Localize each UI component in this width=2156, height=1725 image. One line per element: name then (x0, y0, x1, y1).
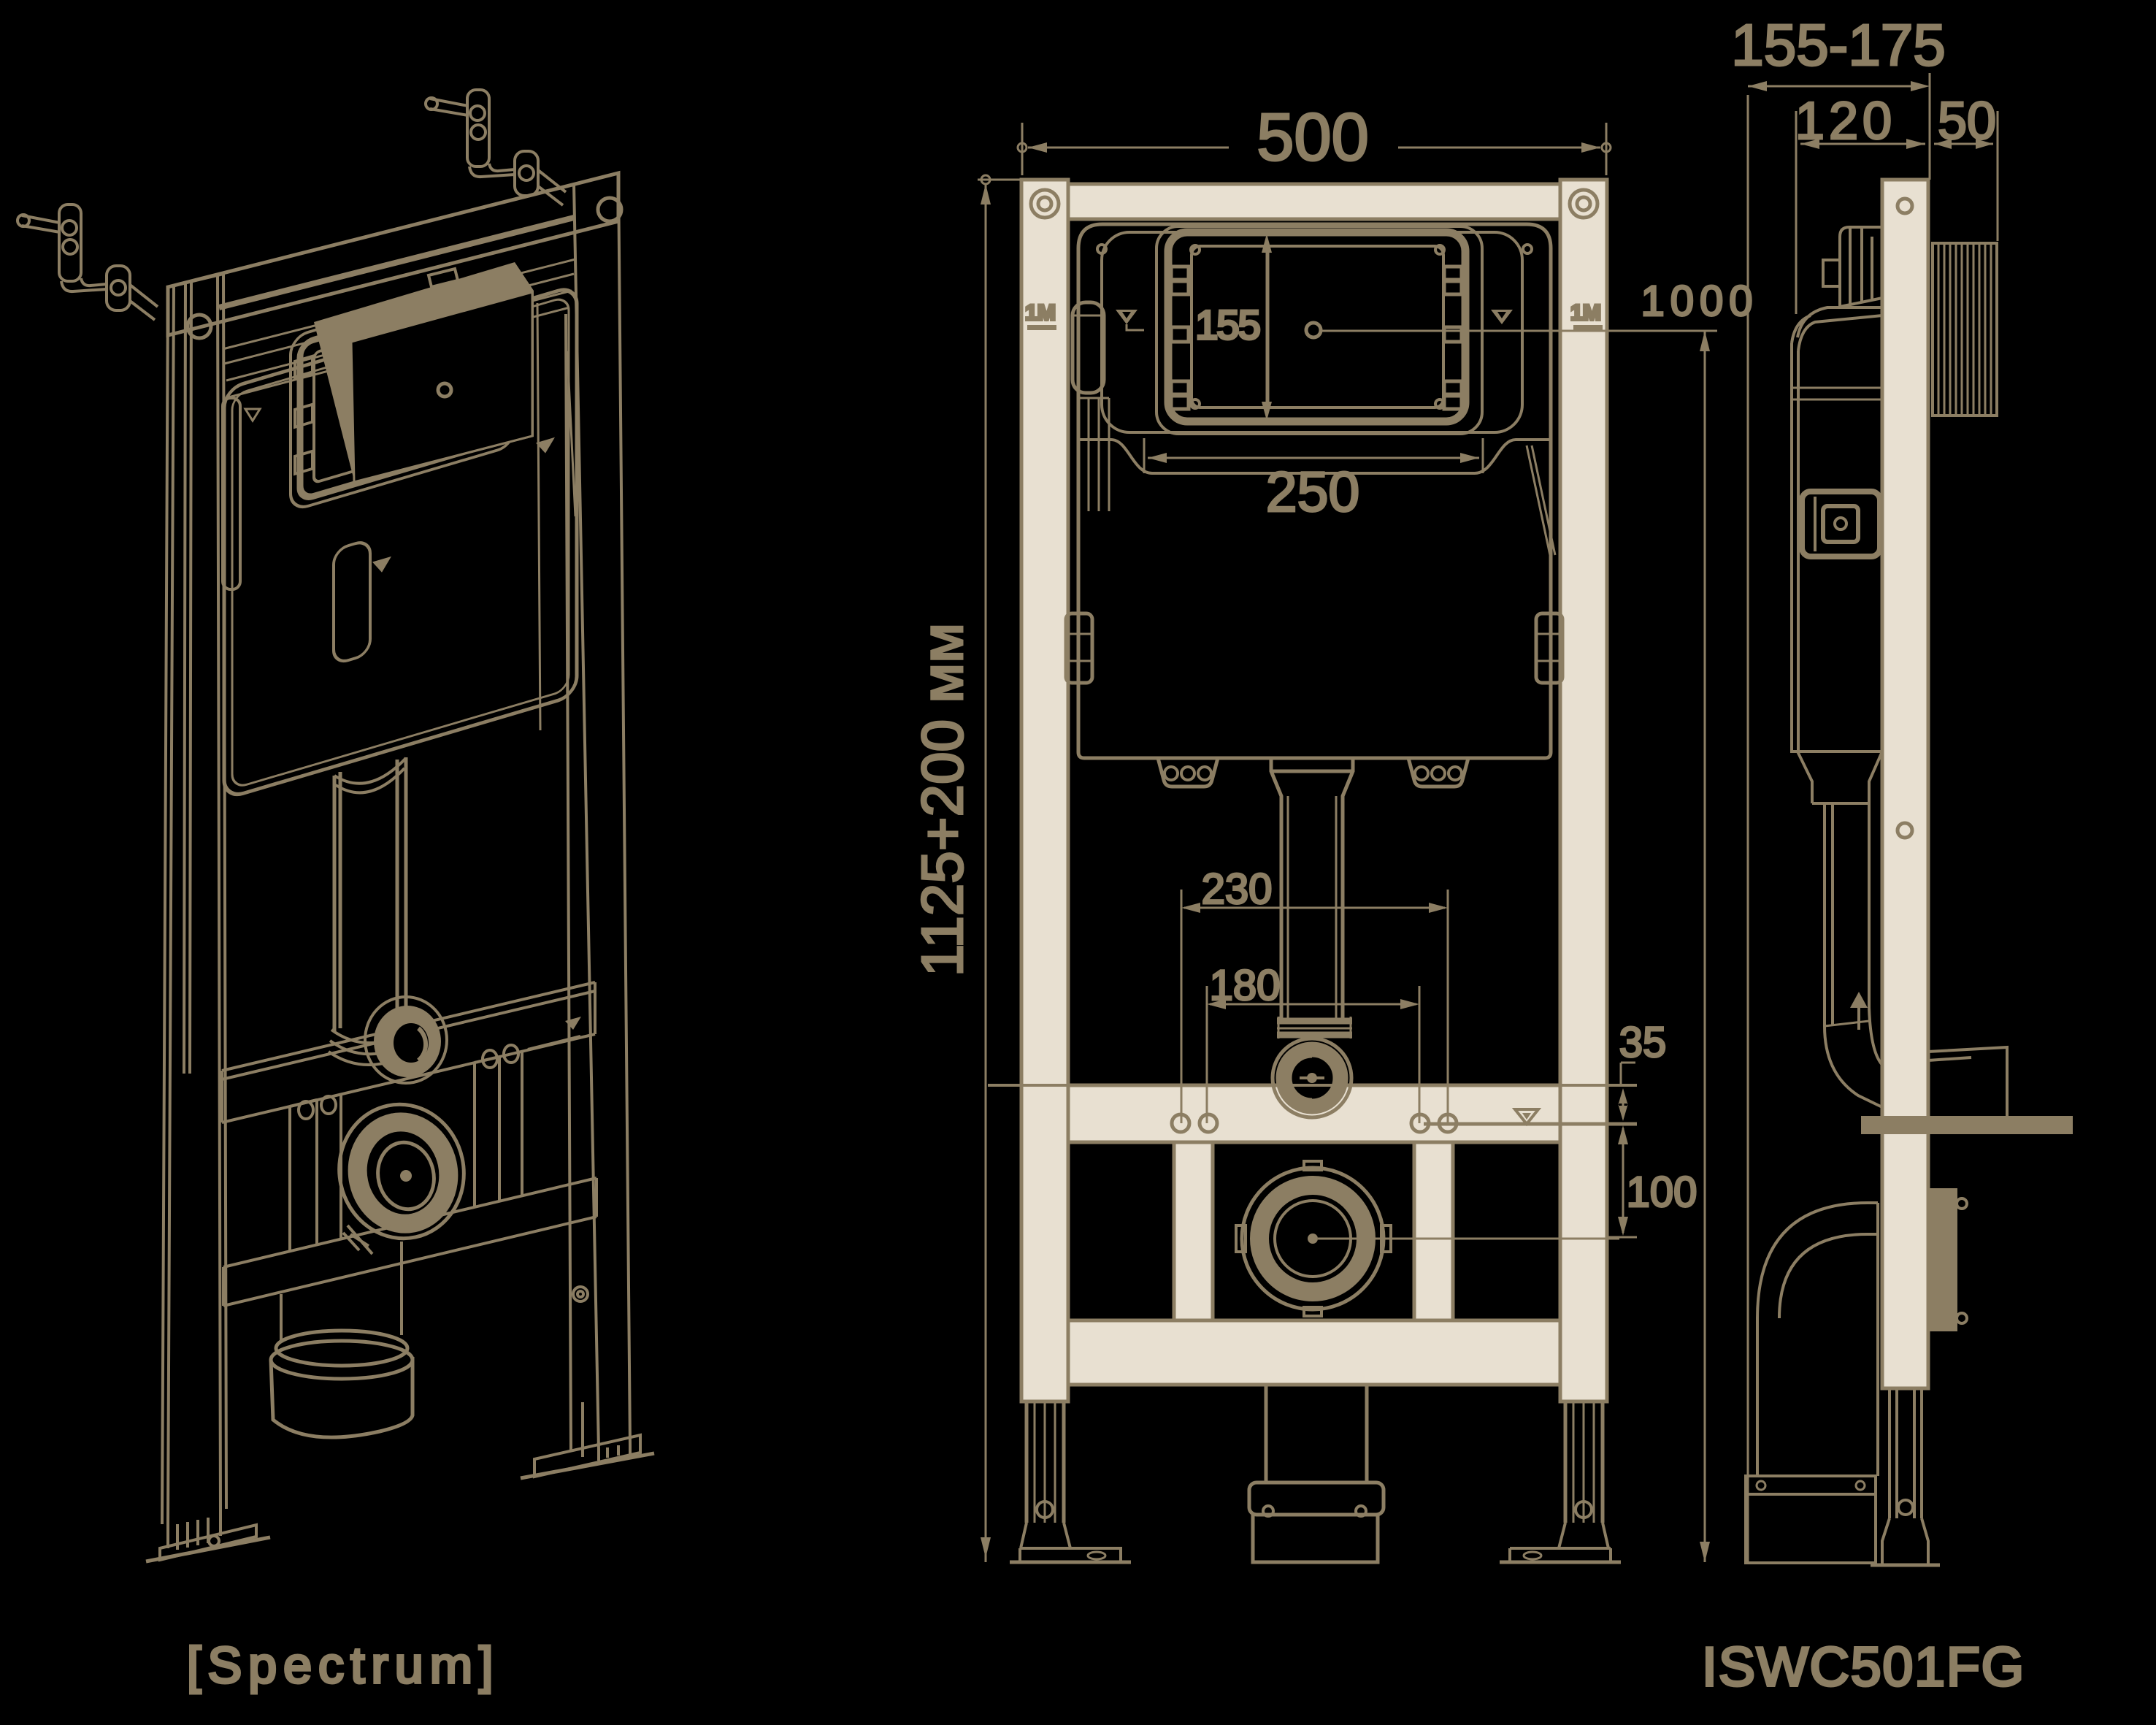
svg-text:1M: 1M (1570, 301, 1601, 325)
svg-text:230: 230 (1202, 865, 1273, 913)
svg-text:1000: 1000 (1641, 278, 1758, 325)
svg-text:500: 500 (1257, 100, 1369, 175)
svg-text:155-175: 155-175 (1731, 12, 1946, 77)
svg-text:ISWC501FG: ISWC501FG (1702, 1636, 2025, 1697)
svg-text:155: 155 (1195, 302, 1259, 348)
svg-text:1M: 1M (1025, 301, 1056, 325)
svg-text:180: 180 (1210, 962, 1281, 1009)
svg-text:250: 250 (1266, 461, 1359, 524)
svg-text:100: 100 (1627, 1169, 1697, 1216)
svg-text:35: 35 (1619, 1019, 1667, 1066)
svg-text:1125+200 мм: 1125+200 мм (910, 623, 975, 976)
svg-text:[Spectrum]: [Spectrum] (187, 1637, 499, 1694)
